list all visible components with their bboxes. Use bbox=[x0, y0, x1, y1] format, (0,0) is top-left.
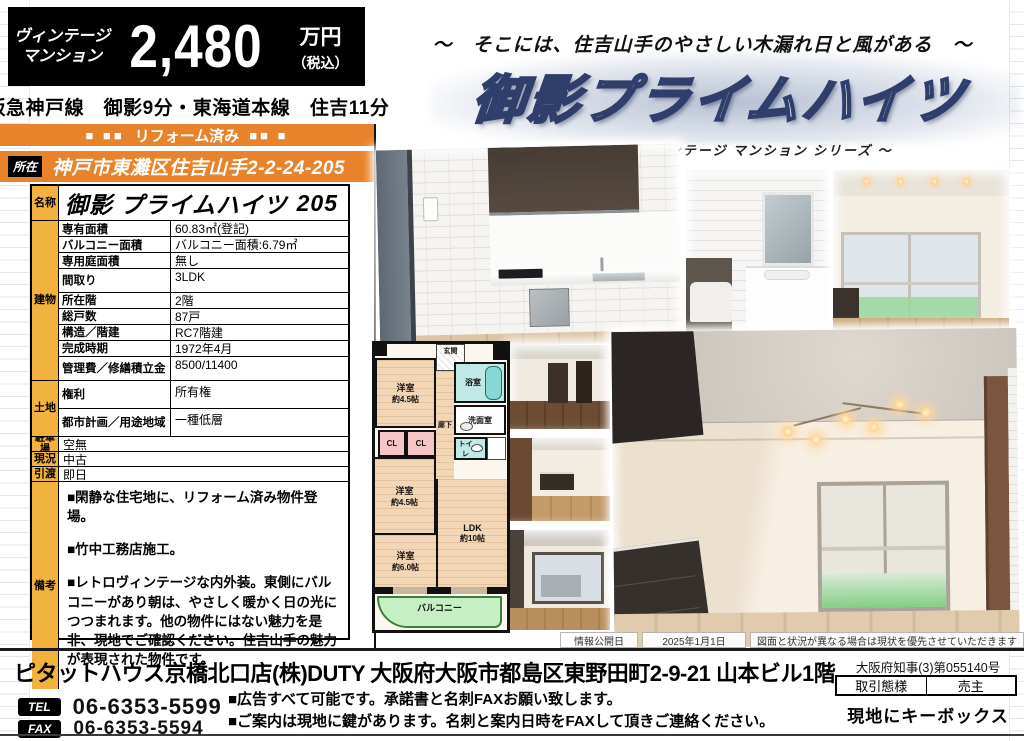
info-bar: 情報公開日 2025年1月1日 図面と状況が異なる場合は現状を優先させていただき… bbox=[560, 632, 1024, 648]
kitchen-cabinets bbox=[491, 282, 682, 334]
window bbox=[532, 552, 604, 604]
photo-living-small bbox=[833, 170, 1009, 332]
info-date-value: 2025年1月1日 bbox=[642, 632, 746, 648]
property-name: 御影 プライムハイツ bbox=[65, 186, 287, 220]
kitchen-door bbox=[376, 150, 416, 349]
balcony-turf bbox=[844, 297, 978, 319]
ldk-label: LDK bbox=[463, 523, 482, 533]
row-label: 所在階 bbox=[59, 293, 171, 308]
row-value: 無し bbox=[171, 253, 348, 268]
building-label-cell: 建物 bbox=[32, 221, 59, 380]
interior-door bbox=[576, 361, 592, 403]
kitchen-backwall bbox=[489, 212, 680, 274]
license-number: 大阪府知事(3)第055140号 bbox=[838, 657, 1018, 676]
wall-block bbox=[375, 344, 387, 356]
hallway-label: 廊下 bbox=[438, 420, 452, 430]
plan-closet2: CL bbox=[406, 430, 436, 457]
plan-hallway: 廊下 bbox=[436, 371, 454, 479]
closet-label: CL bbox=[416, 439, 427, 448]
ceiling-lights bbox=[863, 178, 973, 186]
row-label: 間取り bbox=[59, 269, 171, 292]
plan-room1: 洋室 約4.5帖 bbox=[375, 358, 436, 428]
wood-floor bbox=[532, 496, 610, 521]
photo-hallway bbox=[510, 345, 610, 429]
info-disclaimer: 図面と状況が異なる場合は現状を優先させていただきます bbox=[750, 632, 1024, 648]
room-size: 約6.0帖 bbox=[392, 562, 419, 573]
balcony-window bbox=[841, 232, 981, 328]
washroom-sink bbox=[764, 270, 810, 280]
property-table: 名称 御影 プライムハイツ 205 建物 専有面積 60.83㎡(登記) バルコ… bbox=[30, 184, 350, 640]
note-paragraph: ■閑静な住宅地に、リフォーム済み物件登場。 bbox=[67, 488, 340, 526]
row-value: 即日 bbox=[59, 467, 348, 481]
room-number: 205 bbox=[297, 190, 338, 217]
floor-plan: 玄関 洋室 約4.5帖 浴室 洗面室 トイレ 廊下 CL CL 洋室 約4.5 bbox=[372, 341, 510, 633]
interior-door bbox=[548, 363, 568, 403]
kitchen-dishwasher bbox=[529, 288, 570, 327]
table-row: 間取り 3LDK bbox=[59, 269, 348, 293]
row-label: 駐車場 bbox=[32, 437, 59, 451]
tel-number: 06-6353-5599 bbox=[73, 694, 222, 720]
table-row: 構造／階建 RC7階建 bbox=[59, 325, 348, 341]
plan-balcony: バルコニー bbox=[377, 596, 502, 628]
row-value: 2階 bbox=[171, 293, 348, 308]
dark-wood-floor bbox=[510, 401, 610, 429]
building-group: 建物 専有面積 60.83㎡(登記) バルコニー面積 バルコニー面積:6.79㎡… bbox=[32, 221, 348, 381]
tel-badge: TEL bbox=[18, 698, 61, 716]
wall-cabinet bbox=[611, 328, 703, 444]
photo-living-large bbox=[611, 328, 1019, 648]
flyer-page: ヴィンテージ マンション 2,480 万円 （税込） 阪急神戸線 御影9分・東海… bbox=[0, 0, 1024, 741]
room-size: 約4.5帖 bbox=[391, 497, 418, 508]
price-box: ヴィンテージ マンション 2,480 万円 （税込） bbox=[8, 7, 365, 86]
fax-number: 06-6353-5594 bbox=[73, 718, 203, 740]
row-label: バルコニー面積 bbox=[59, 237, 171, 252]
kitchen-counter bbox=[540, 472, 574, 490]
row-label: 引渡 bbox=[32, 467, 59, 481]
table-row: 完成時期 1972年4月 bbox=[59, 341, 348, 357]
row-value: RC7階建 bbox=[171, 325, 348, 340]
door-frame bbox=[984, 376, 1011, 620]
deal-type-value: 売主 bbox=[927, 677, 1016, 694]
balcony-sliding-window bbox=[817, 481, 950, 612]
room-size: 約4.5帖 bbox=[392, 394, 419, 405]
kitchen-sink bbox=[593, 272, 645, 281]
table-row: 都市計画／用途地域 一種低層 bbox=[59, 409, 348, 436]
toilet-icon bbox=[471, 444, 483, 452]
row-label: 総戸数 bbox=[59, 309, 171, 324]
table-row-delivery: 引渡 即日 bbox=[32, 467, 348, 482]
plan-room3: 洋室 約6.0帖 bbox=[375, 533, 436, 587]
plan-toilet: トイレ bbox=[454, 437, 487, 460]
row-value: バルコニー面積:6.79㎡ bbox=[171, 237, 348, 252]
note-paragraph: ■レトロヴィンテージな内外装。東側にバルコニーがあり朝は、やさしく暖かく日の光に… bbox=[67, 573, 340, 669]
price-value: 2,480 bbox=[120, 12, 272, 81]
category-line1: ヴィンテージ bbox=[8, 27, 116, 47]
footer-note-2: ■ご案内は現地に鍵があります。名刺と案内日時をFAXして頂きご連絡ください。 bbox=[228, 711, 774, 733]
buildings-view bbox=[541, 575, 581, 597]
row-label: 管理費／修繕積立金 bbox=[59, 357, 171, 380]
price-unit: 万円 （税込） bbox=[276, 21, 365, 73]
note-paragraph: ■竹中工務店施工。 bbox=[67, 540, 340, 559]
location-badge: 所在 bbox=[8, 156, 42, 177]
table-row: 所在階 2階 bbox=[59, 293, 348, 309]
row-label: 専有面積 bbox=[59, 221, 171, 236]
property-title: 御影プライムハイツ bbox=[416, 58, 1024, 133]
bathtub bbox=[485, 366, 502, 400]
row-value: 一種低層 bbox=[171, 409, 348, 436]
bath-label: 浴室 bbox=[465, 377, 481, 388]
category-line2: マンション bbox=[8, 47, 116, 67]
washroom-laundry-pan bbox=[690, 282, 732, 322]
deal-type-box: 取引態様 売主 bbox=[835, 675, 1017, 696]
room-label: 洋室 bbox=[396, 549, 414, 562]
row-label: 専用庭面積 bbox=[59, 253, 171, 268]
table-row: 専有面積 60.83㎡(登記) bbox=[59, 221, 348, 237]
row-value: 1972年4月 bbox=[171, 341, 348, 356]
fax-row: FAX 06-6353-5594 bbox=[18, 718, 204, 740]
row-value: 60.83㎡(登記) bbox=[171, 221, 348, 236]
sink-icon bbox=[460, 422, 473, 431]
station-access-line: 阪急神戸線 御影9分・東海道本線 住吉11分 bbox=[4, 90, 372, 122]
kitchen-range-hood bbox=[488, 145, 640, 216]
kitchen-intercom bbox=[423, 197, 439, 221]
photo-room-window bbox=[510, 530, 610, 630]
land-group: 土地 権利 所有権 都市計画／用途地域 一種低層 bbox=[32, 381, 348, 437]
row-label: 構造／階建 bbox=[59, 325, 171, 340]
footer-top-rule bbox=[0, 648, 1024, 651]
location-band: 所在 神戸市東灘区住吉山手2-2-24-205 bbox=[0, 149, 374, 182]
location-address: 神戸市東灘区住吉山手2-2-24-205 bbox=[52, 153, 345, 180]
table-row: バルコニー面積 バルコニー面積:6.79㎡ bbox=[59, 237, 348, 253]
balcony-label: バルコニー bbox=[417, 601, 462, 614]
info-date-label: 情報公開日 bbox=[560, 632, 638, 648]
row-value: 87戸 bbox=[171, 309, 348, 324]
kitchen-faucet bbox=[600, 257, 603, 271]
category-label: ヴィンテージ マンション bbox=[8, 27, 116, 67]
row-value: 3LDK bbox=[171, 269, 348, 292]
table-row: 総戸数 87戸 bbox=[59, 309, 348, 325]
land-label-cell: 土地 bbox=[32, 381, 59, 436]
reform-label: リフォーム済み bbox=[135, 125, 240, 146]
room-label: 洋室 bbox=[395, 484, 413, 497]
wall-block bbox=[493, 344, 507, 360]
price-unit-label: 万円 bbox=[276, 21, 365, 51]
row-value: 所有権 bbox=[171, 381, 348, 408]
property-name-cell: 御影 プライムハイツ 205 bbox=[59, 186, 348, 220]
deal-type-label: 取引態様 bbox=[837, 677, 927, 694]
row-label: 完成時期 bbox=[59, 341, 171, 356]
plan-storage bbox=[487, 437, 506, 460]
row-label: 現況 bbox=[32, 452, 59, 466]
row-label: 権利 bbox=[59, 381, 171, 408]
photo-washroom bbox=[686, 170, 830, 332]
footer-bottom-rule bbox=[0, 734, 1024, 736]
sliding-door-frame bbox=[510, 438, 532, 521]
ldk-size: 約10帖 bbox=[460, 533, 485, 544]
row-value: 中古 bbox=[59, 452, 348, 466]
price-tax-label: （税込） bbox=[276, 53, 365, 73]
spotlight-fixture bbox=[782, 387, 933, 449]
row-label: 都市計画／用途地域 bbox=[59, 409, 171, 436]
plan-washroom: 洗面室 bbox=[454, 405, 506, 435]
name-label-cell: 名称 bbox=[32, 186, 59, 220]
decor-squares-left: ■ ■■ bbox=[86, 128, 125, 143]
table-row: 権利 所有権 bbox=[59, 381, 348, 409]
photo-kitchen bbox=[376, 144, 682, 349]
company-line: ピタットハウス京橋北口店(株)DUTY 大阪府大阪市都島区東野田町2-9-21 … bbox=[14, 656, 844, 688]
reform-banner: ■ ■■ リフォーム済み ■■ ■ bbox=[0, 124, 374, 146]
plan-bottom-wall bbox=[375, 587, 507, 594]
footer-note-1: ■広告すべて可能です。承諾書と名刺FAXお願い致します。 bbox=[228, 689, 774, 711]
table-row: 管理費／修繕積立金 8500/11400 bbox=[59, 357, 348, 380]
footer-notes: ■広告すべて可能です。承諾書と名刺FAXお願い致します。 ■ご案内は現地に鍵があ… bbox=[228, 689, 774, 733]
table-row: 専用庭面積 無し bbox=[59, 253, 348, 269]
plan-ldk: LDK 約10帖 bbox=[436, 479, 507, 587]
room-label: 洋室 bbox=[396, 381, 414, 394]
tel-row: TEL 06-6353-5599 bbox=[18, 694, 222, 720]
decor-squares-right: ■■ ■ bbox=[249, 128, 288, 143]
row-value: 空無 bbox=[59, 437, 348, 451]
wood-floor bbox=[510, 608, 610, 630]
balcony-green-floor bbox=[822, 573, 946, 608]
photo-room-to-kitchen bbox=[510, 438, 610, 521]
plan-closet1: CL bbox=[378, 430, 406, 457]
entrance-label: 玄関 bbox=[444, 348, 458, 355]
table-row-name: 名称 御影 プライムハイツ 205 bbox=[32, 186, 348, 221]
plan-bath: 浴室 bbox=[454, 362, 506, 403]
washroom-mirror bbox=[762, 192, 814, 266]
plan-room2: 洋室 約4.5帖 bbox=[375, 457, 436, 533]
closet-label: CL bbox=[387, 439, 398, 448]
keybox-note: 現地にキーボックス bbox=[838, 702, 1018, 727]
kitchen-stove bbox=[499, 269, 543, 279]
row-value: 8500/11400 bbox=[171, 357, 348, 380]
